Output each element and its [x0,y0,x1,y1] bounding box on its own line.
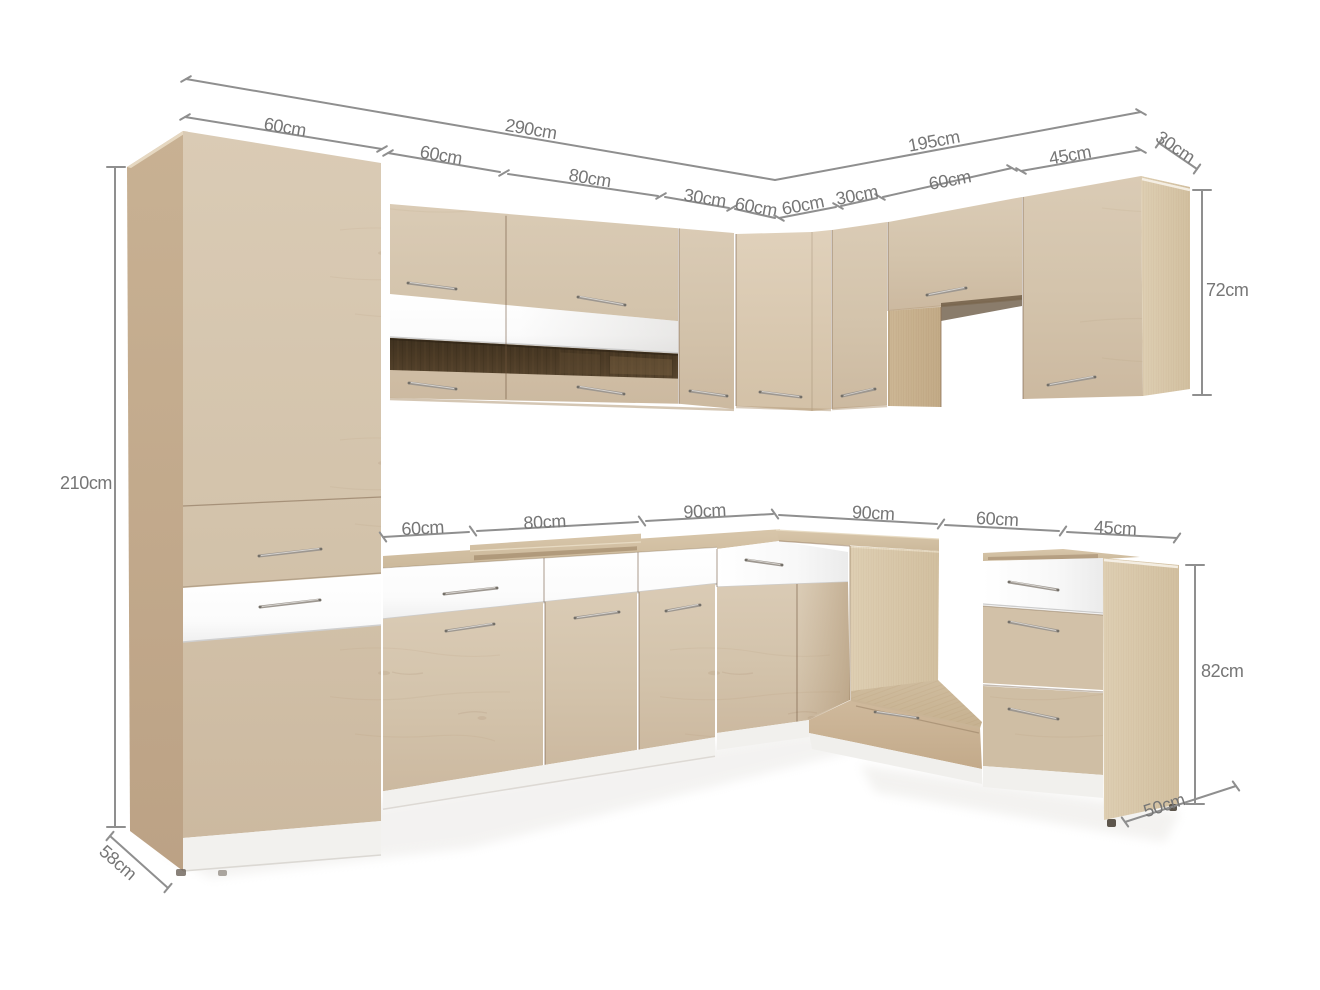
svg-text:80cm: 80cm [523,511,566,533]
svg-text:90cm: 90cm [683,500,726,522]
svg-text:45cm: 45cm [1094,517,1137,539]
svg-text:60cm: 60cm [401,517,444,539]
svg-text:210cm: 210cm [60,473,112,493]
svg-text:60cm: 60cm [976,508,1019,530]
svg-text:90cm: 90cm [852,502,895,524]
svg-text:82cm: 82cm [1201,661,1243,681]
svg-text:72cm: 72cm [1206,280,1248,300]
